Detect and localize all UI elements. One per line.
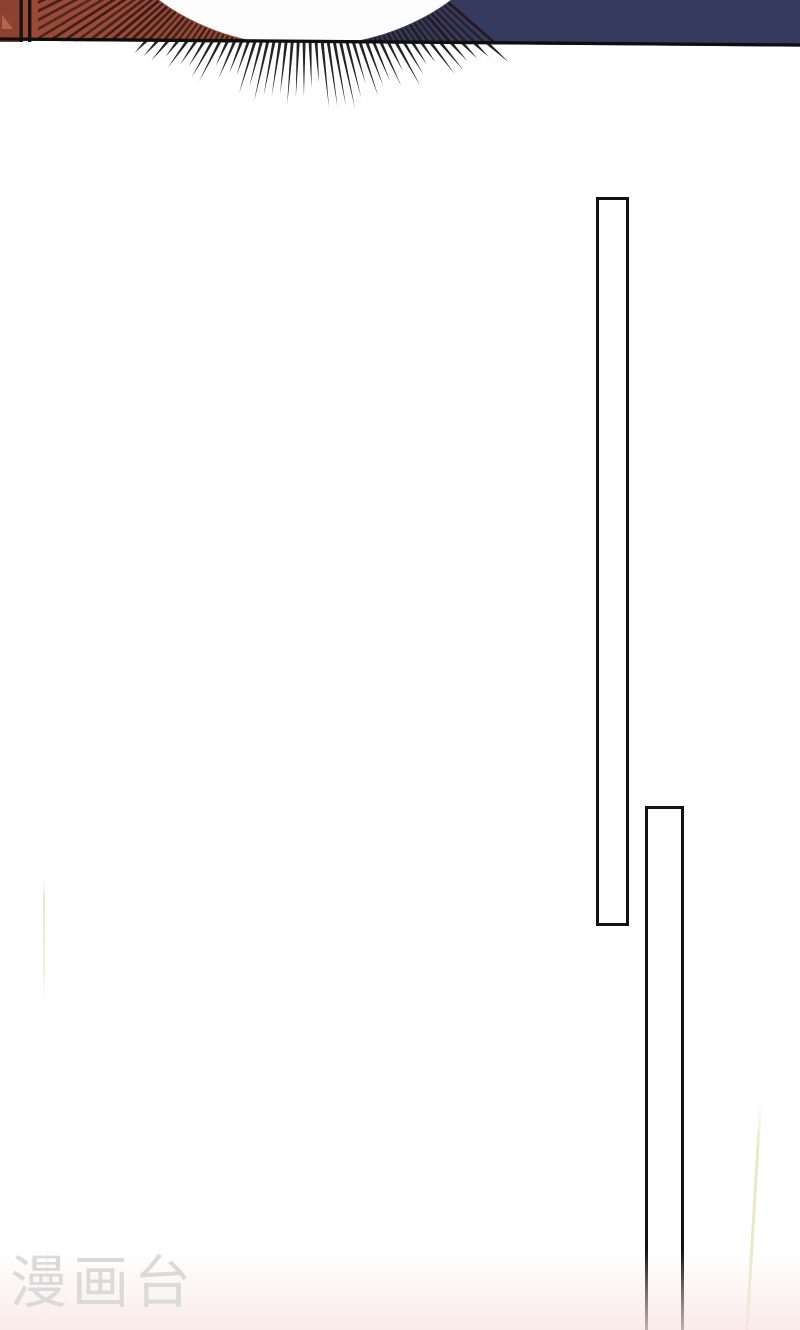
panel-rect-lower	[645, 806, 684, 1330]
watermark-text: 漫画台	[10, 1255, 196, 1312]
scratch-line-right	[745, 1102, 761, 1330]
top-panel-artwork	[0, 0, 800, 120]
panel-rect-tall	[596, 197, 629, 926]
scratch-line-left	[43, 877, 45, 1003]
speed-line-spikes	[135, 40, 510, 109]
comic-page: 漫画台	[0, 0, 800, 1330]
